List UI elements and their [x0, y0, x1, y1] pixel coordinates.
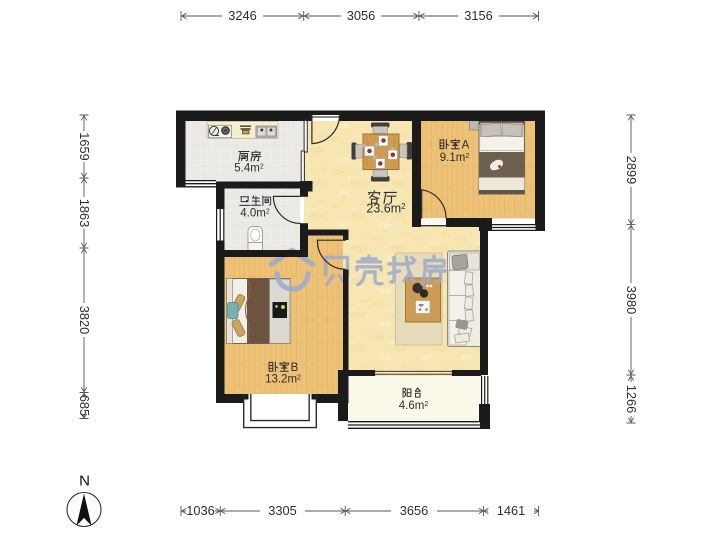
svg-text:3980: 3980 — [624, 286, 639, 314]
svg-text:1863: 1863 — [77, 199, 92, 227]
svg-text:23.6m2: 23.6m2 — [366, 202, 406, 216]
svg-text:3820: 3820 — [77, 306, 92, 334]
svg-text:4.0m2: 4.0m2 — [240, 208, 270, 220]
svg-text:5.4m2: 5.4m2 — [234, 163, 264, 175]
svg-text:1659: 1659 — [77, 132, 92, 160]
svg-text:A: A — [462, 140, 470, 152]
svg-text:3246: 3246 — [228, 8, 256, 23]
svg-text:3156: 3156 — [464, 8, 492, 23]
svg-text:3656: 3656 — [400, 503, 428, 518]
svg-text:3305: 3305 — [268, 503, 296, 518]
svg-text:2899: 2899 — [624, 156, 639, 184]
svg-text:685: 685 — [77, 395, 92, 416]
svg-text:1036: 1036 — [186, 503, 214, 518]
svg-text:1266: 1266 — [624, 385, 639, 413]
svg-text:9.1m2: 9.1m2 — [440, 152, 470, 164]
svg-text:13.2m2: 13.2m2 — [265, 374, 301, 386]
svg-text:N: N — [79, 473, 90, 490]
svg-text:1461: 1461 — [497, 503, 525, 518]
svg-text:3056: 3056 — [347, 8, 375, 23]
svg-text:B: B — [291, 362, 299, 374]
svg-text:4.6m2: 4.6m2 — [399, 400, 429, 412]
